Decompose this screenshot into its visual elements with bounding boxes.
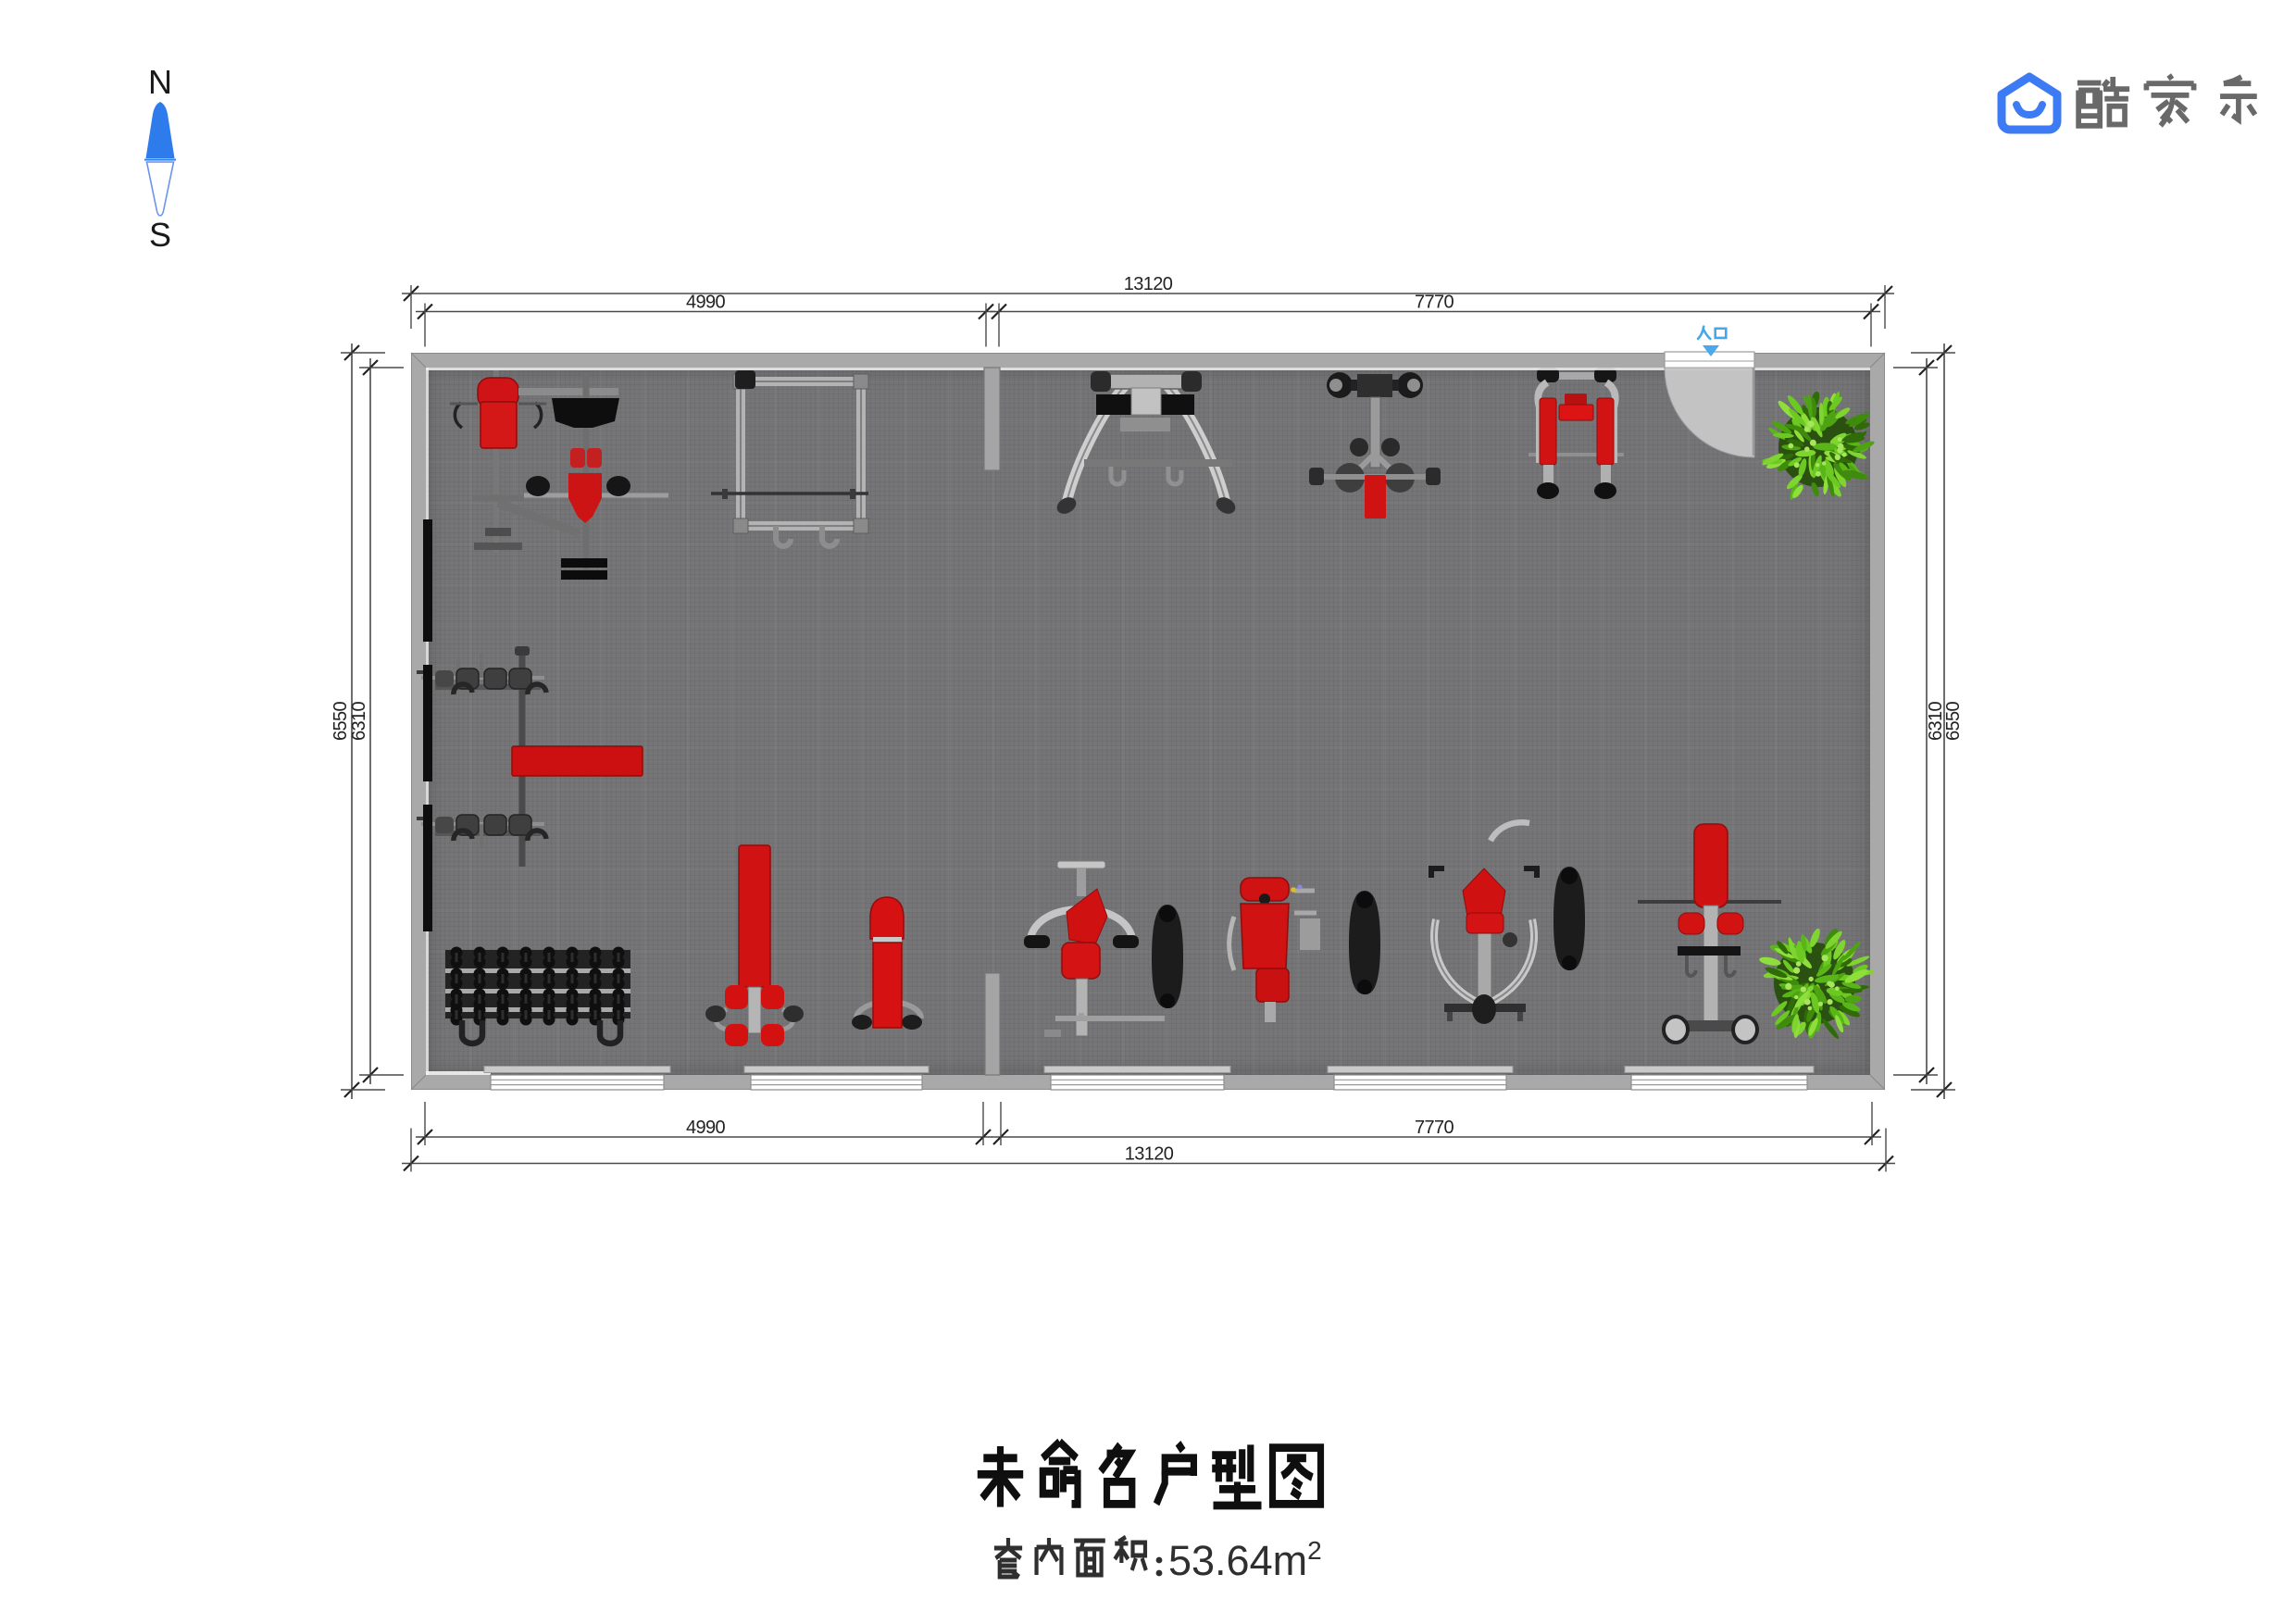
svg-text:N: N: [148, 63, 172, 101]
svg-text:6550: 6550: [331, 701, 351, 741]
svg-text:S: S: [149, 216, 171, 254]
svg-text:6550: 6550: [1943, 701, 1964, 741]
svg-text:7770: 7770: [1415, 1118, 1454, 1138]
svg-text:53.64m2: 53.64m2: [1168, 1536, 1322, 1584]
svg-text:4990: 4990: [686, 293, 726, 313]
svg-text:6310: 6310: [349, 701, 369, 741]
svg-text:7770: 7770: [1415, 293, 1454, 313]
svg-text:13120: 13120: [1125, 1144, 1174, 1165]
svg-text:4990: 4990: [686, 1118, 726, 1138]
svg-text:13120: 13120: [1124, 274, 1173, 294]
